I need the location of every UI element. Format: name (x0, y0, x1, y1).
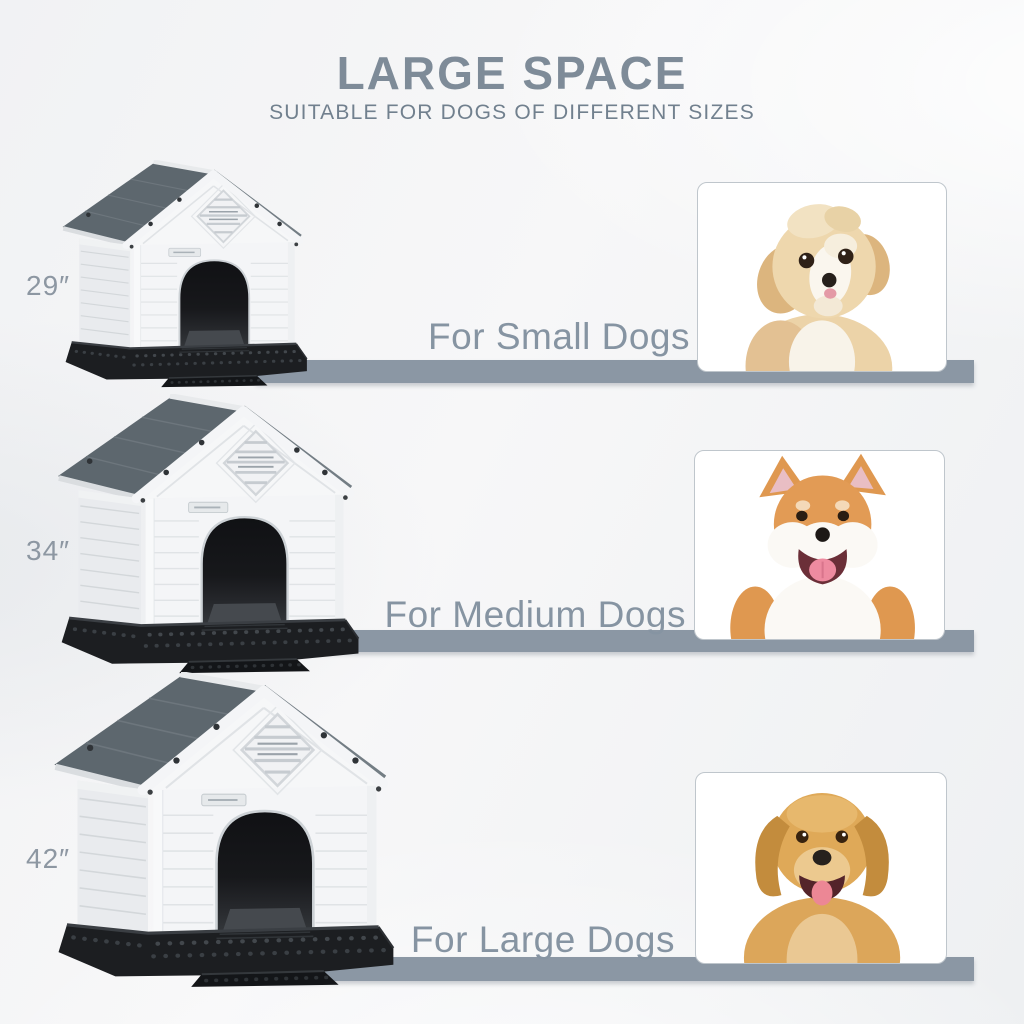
size-label: 34″ (26, 537, 70, 565)
row-caption: For Medium Dogs (356, 596, 686, 633)
dog-photo-card (694, 450, 945, 640)
row-caption: For Large Dogs (345, 921, 675, 958)
dog-photo-card (697, 182, 947, 372)
row-caption: For Small Dogs (360, 318, 690, 355)
havanese-puppy-photo (698, 183, 946, 371)
page-subtitle: SUITABLE FOR DOGS OF DIFFERENT SIZES (0, 102, 1024, 123)
infographic-canvas: LARGE SPACE SUITABLE FOR DOGS OF DIFFERE… (0, 0, 1024, 1024)
size-label: 29″ (26, 272, 70, 300)
dog-house-photo-small (58, 160, 316, 388)
size-label: 42″ (26, 845, 70, 873)
dog-house-photo-medium (52, 394, 370, 674)
golden-retriever-photo (696, 773, 946, 963)
shiba-inu-photo (695, 451, 944, 639)
dog-photo-card (695, 772, 947, 964)
page-title: LARGE SPACE (0, 50, 1024, 96)
